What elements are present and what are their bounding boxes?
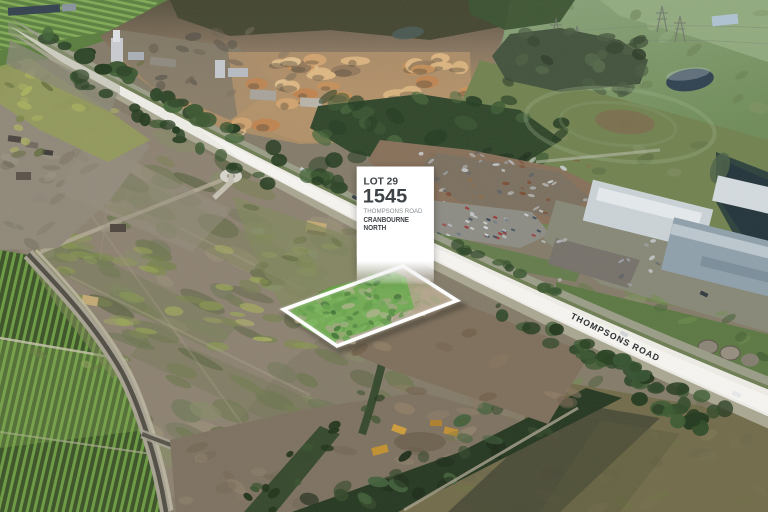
svg-text:NORTH: NORTH (364, 223, 387, 232)
svg-text:1545: 1545 (363, 186, 408, 208)
